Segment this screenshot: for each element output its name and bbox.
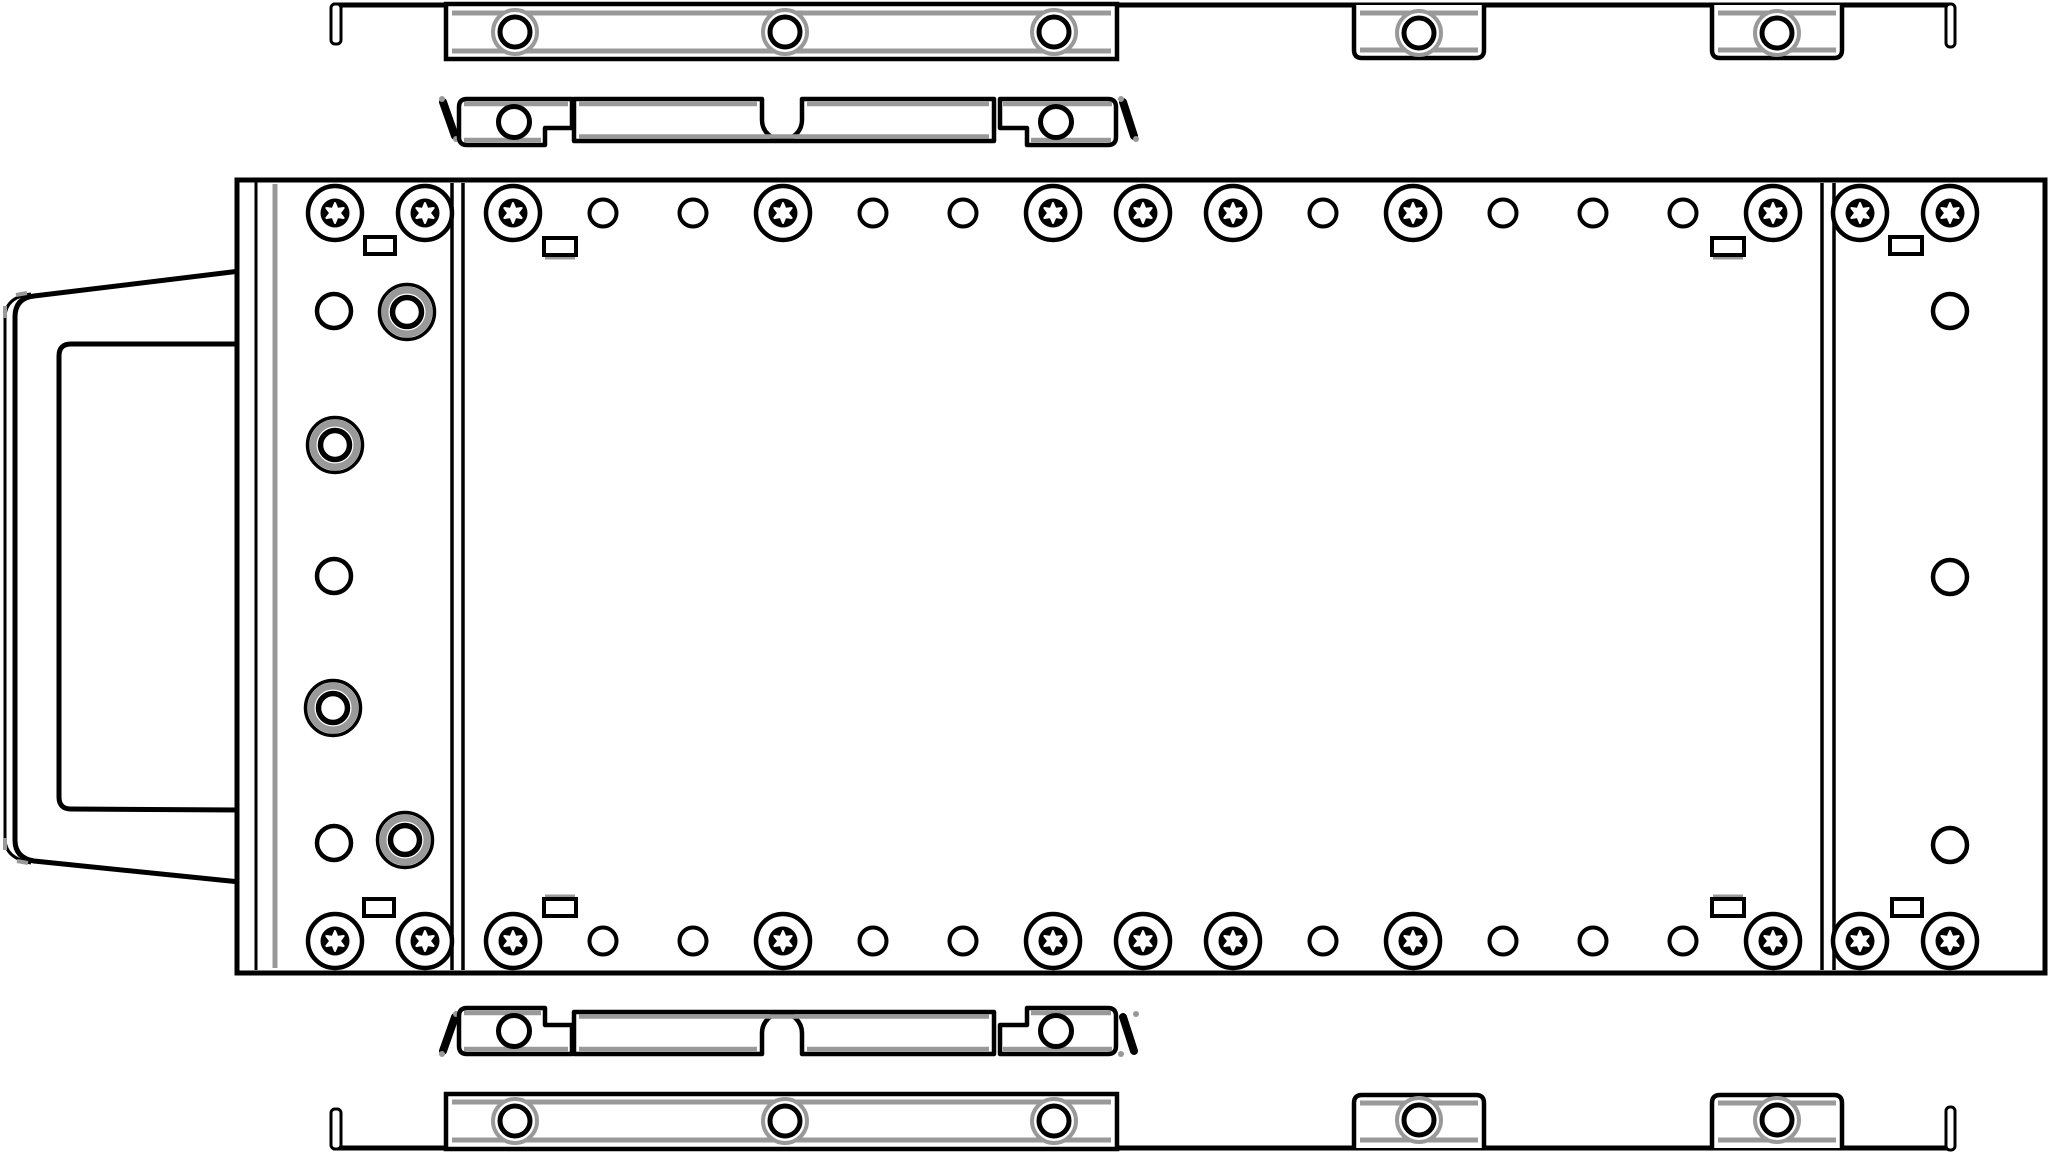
- mounting-slot: [1712, 238, 1744, 257]
- torx-screw: [486, 186, 540, 240]
- rail-hole: [1397, 1098, 1441, 1142]
- torx-screw: [1833, 914, 1887, 968]
- rail-hole: [1397, 11, 1441, 55]
- torx-screw: [1026, 186, 1080, 240]
- torx-screw: [1923, 914, 1977, 968]
- rail-hole: [1032, 1099, 1076, 1143]
- mounting-slot: [1712, 897, 1744, 916]
- torx-screw: [1746, 186, 1800, 240]
- technical-drawing-page: [0, 0, 2048, 1154]
- torx-screw: [756, 186, 810, 240]
- torx-screw: [1923, 186, 1977, 240]
- torx-screw: [1206, 186, 1260, 240]
- torx-screw: [1116, 186, 1170, 240]
- torx-screw: [1746, 914, 1800, 968]
- chassis-body: [237, 180, 2045, 973]
- mounting-slot: [365, 237, 395, 254]
- torx-screw: [756, 914, 810, 968]
- rail-hole: [493, 10, 537, 54]
- torx-screw: [308, 914, 362, 968]
- mounting-slot: [1890, 237, 1922, 254]
- top-mounting-rail: [331, 4, 1955, 59]
- rail-hole: [1755, 1098, 1799, 1142]
- grommet-hole: [378, 813, 433, 868]
- grommet-hole: [380, 285, 435, 340]
- bottom-mounting-rail: [331, 1094, 1955, 1150]
- grommet-hole: [306, 681, 361, 736]
- rail-hole: [763, 1099, 807, 1143]
- mounting-slot: [1892, 899, 1922, 916]
- torx-screw: [1116, 914, 1170, 968]
- grommet-hole: [308, 418, 363, 473]
- torx-screw: [1386, 914, 1440, 968]
- mounting-slot: [364, 899, 394, 916]
- torx-screw: [1026, 914, 1080, 968]
- torx-screw: [308, 186, 362, 240]
- torx-screw: [486, 914, 540, 968]
- top-latch-bracket: [439, 96, 1139, 145]
- torx-screw: [1206, 914, 1260, 968]
- torx-screw: [398, 186, 452, 240]
- mounting-slot: [544, 897, 576, 916]
- rail-hole: [493, 1099, 537, 1143]
- torx-screw: [1386, 186, 1440, 240]
- rail-hole: [763, 10, 807, 54]
- rail-hole: [1032, 10, 1076, 54]
- rail-hole: [1755, 11, 1799, 55]
- mounting-slot: [544, 238, 576, 257]
- torx-screw: [398, 914, 452, 968]
- front-bezel-handle: [5, 271, 240, 882]
- torx-screw: [1833, 186, 1887, 240]
- bottom-latch-bracket: [439, 1008, 1139, 1057]
- technical-diagram: [0, 0, 2048, 1154]
